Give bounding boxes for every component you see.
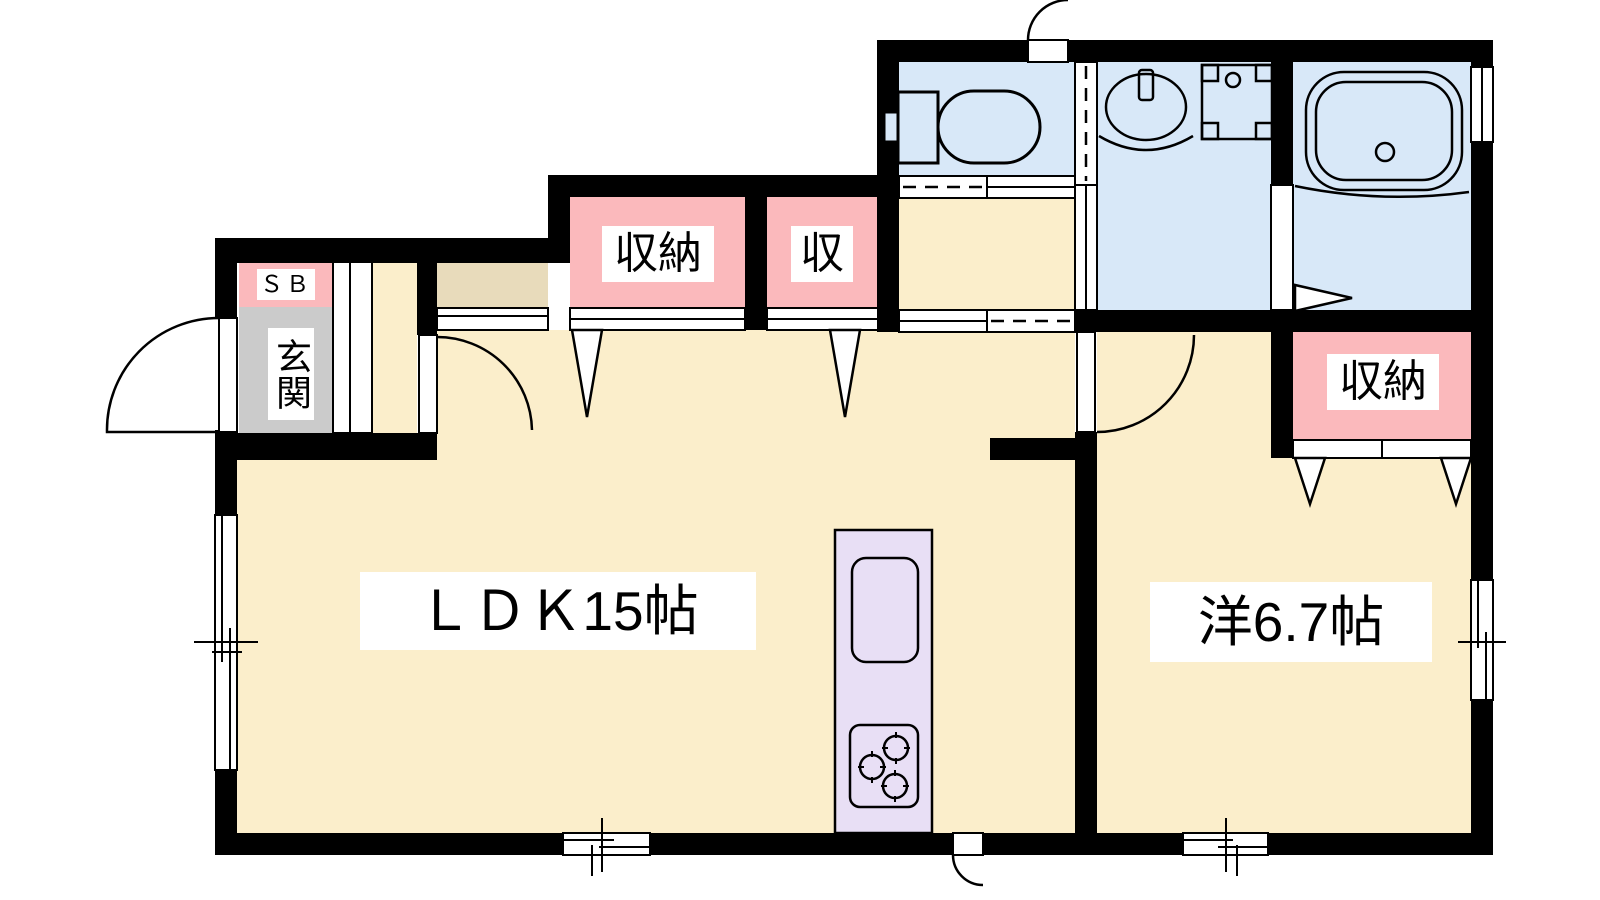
wall-bottom-a: [215, 833, 563, 855]
entrance-label: 玄関: [268, 328, 314, 420]
hall-floor: [899, 198, 1075, 310]
entry-corridor-floor: [372, 262, 417, 433]
wall-bottom-b: [650, 833, 953, 855]
wall-western-top: [1075, 310, 1493, 332]
wall-corridor-stub: [417, 238, 437, 335]
wall-closet-western-left: [1271, 332, 1293, 458]
kitchen-counter: [835, 530, 932, 833]
wall-left-upper: [215, 238, 237, 318]
wall-right-a: [1471, 40, 1493, 67]
entrance-door: [107, 318, 237, 432]
hall-counter-front: [437, 308, 548, 330]
floor-plan-drawing: [0, 0, 1600, 900]
wall-wash-bath-divider: [1271, 40, 1293, 185]
toilet-sliding-door: [899, 176, 1075, 198]
floor-plan: ＬＤＫ15帖 洋6.7帖 収納 収 収納 玄関 ＳＢ: [0, 0, 1600, 900]
hall-counter-top: [437, 263, 548, 308]
closet-small-label: 収: [791, 226, 853, 282]
wall-right-b: [1471, 142, 1493, 580]
top-exterior-door: [1028, 0, 1068, 62]
wall-closet-block-top: [548, 175, 900, 197]
hall-ldk-sliding-door: [899, 310, 1075, 332]
wall-bottom-c: [983, 833, 1183, 855]
western-room-label: 洋6.7帖: [1150, 582, 1432, 662]
bottom-exterior-door: [953, 833, 983, 885]
wall-entrance-top: [215, 238, 567, 263]
ldk-label: ＬＤＫ15帖: [360, 572, 756, 650]
wall-toilet-left: [877, 40, 899, 332]
wall-entrance-bottom: [215, 433, 437, 460]
wall-right-c: [1471, 700, 1493, 855]
toilet-icon: [884, 91, 1040, 163]
closet-western-label: 収納: [1327, 354, 1439, 410]
wall-ldk-western: [1075, 432, 1097, 855]
wall-closet-divider: [745, 175, 767, 330]
wall-washroom-partition-top: [1075, 40, 1097, 62]
window-bathroom-right: [1471, 67, 1493, 142]
washroom-sliding-door: [1075, 62, 1097, 310]
wall-ldk-stub: [990, 438, 1097, 460]
closet-ldk-label: 収納: [602, 226, 714, 282]
wall-closet-block-left: [548, 175, 570, 263]
wall-bottom-d: [1268, 833, 1493, 855]
entrance-step-strip: [333, 262, 372, 433]
wall-top-a: [877, 40, 1028, 62]
shoe-box-label: ＳＢ: [257, 269, 315, 300]
